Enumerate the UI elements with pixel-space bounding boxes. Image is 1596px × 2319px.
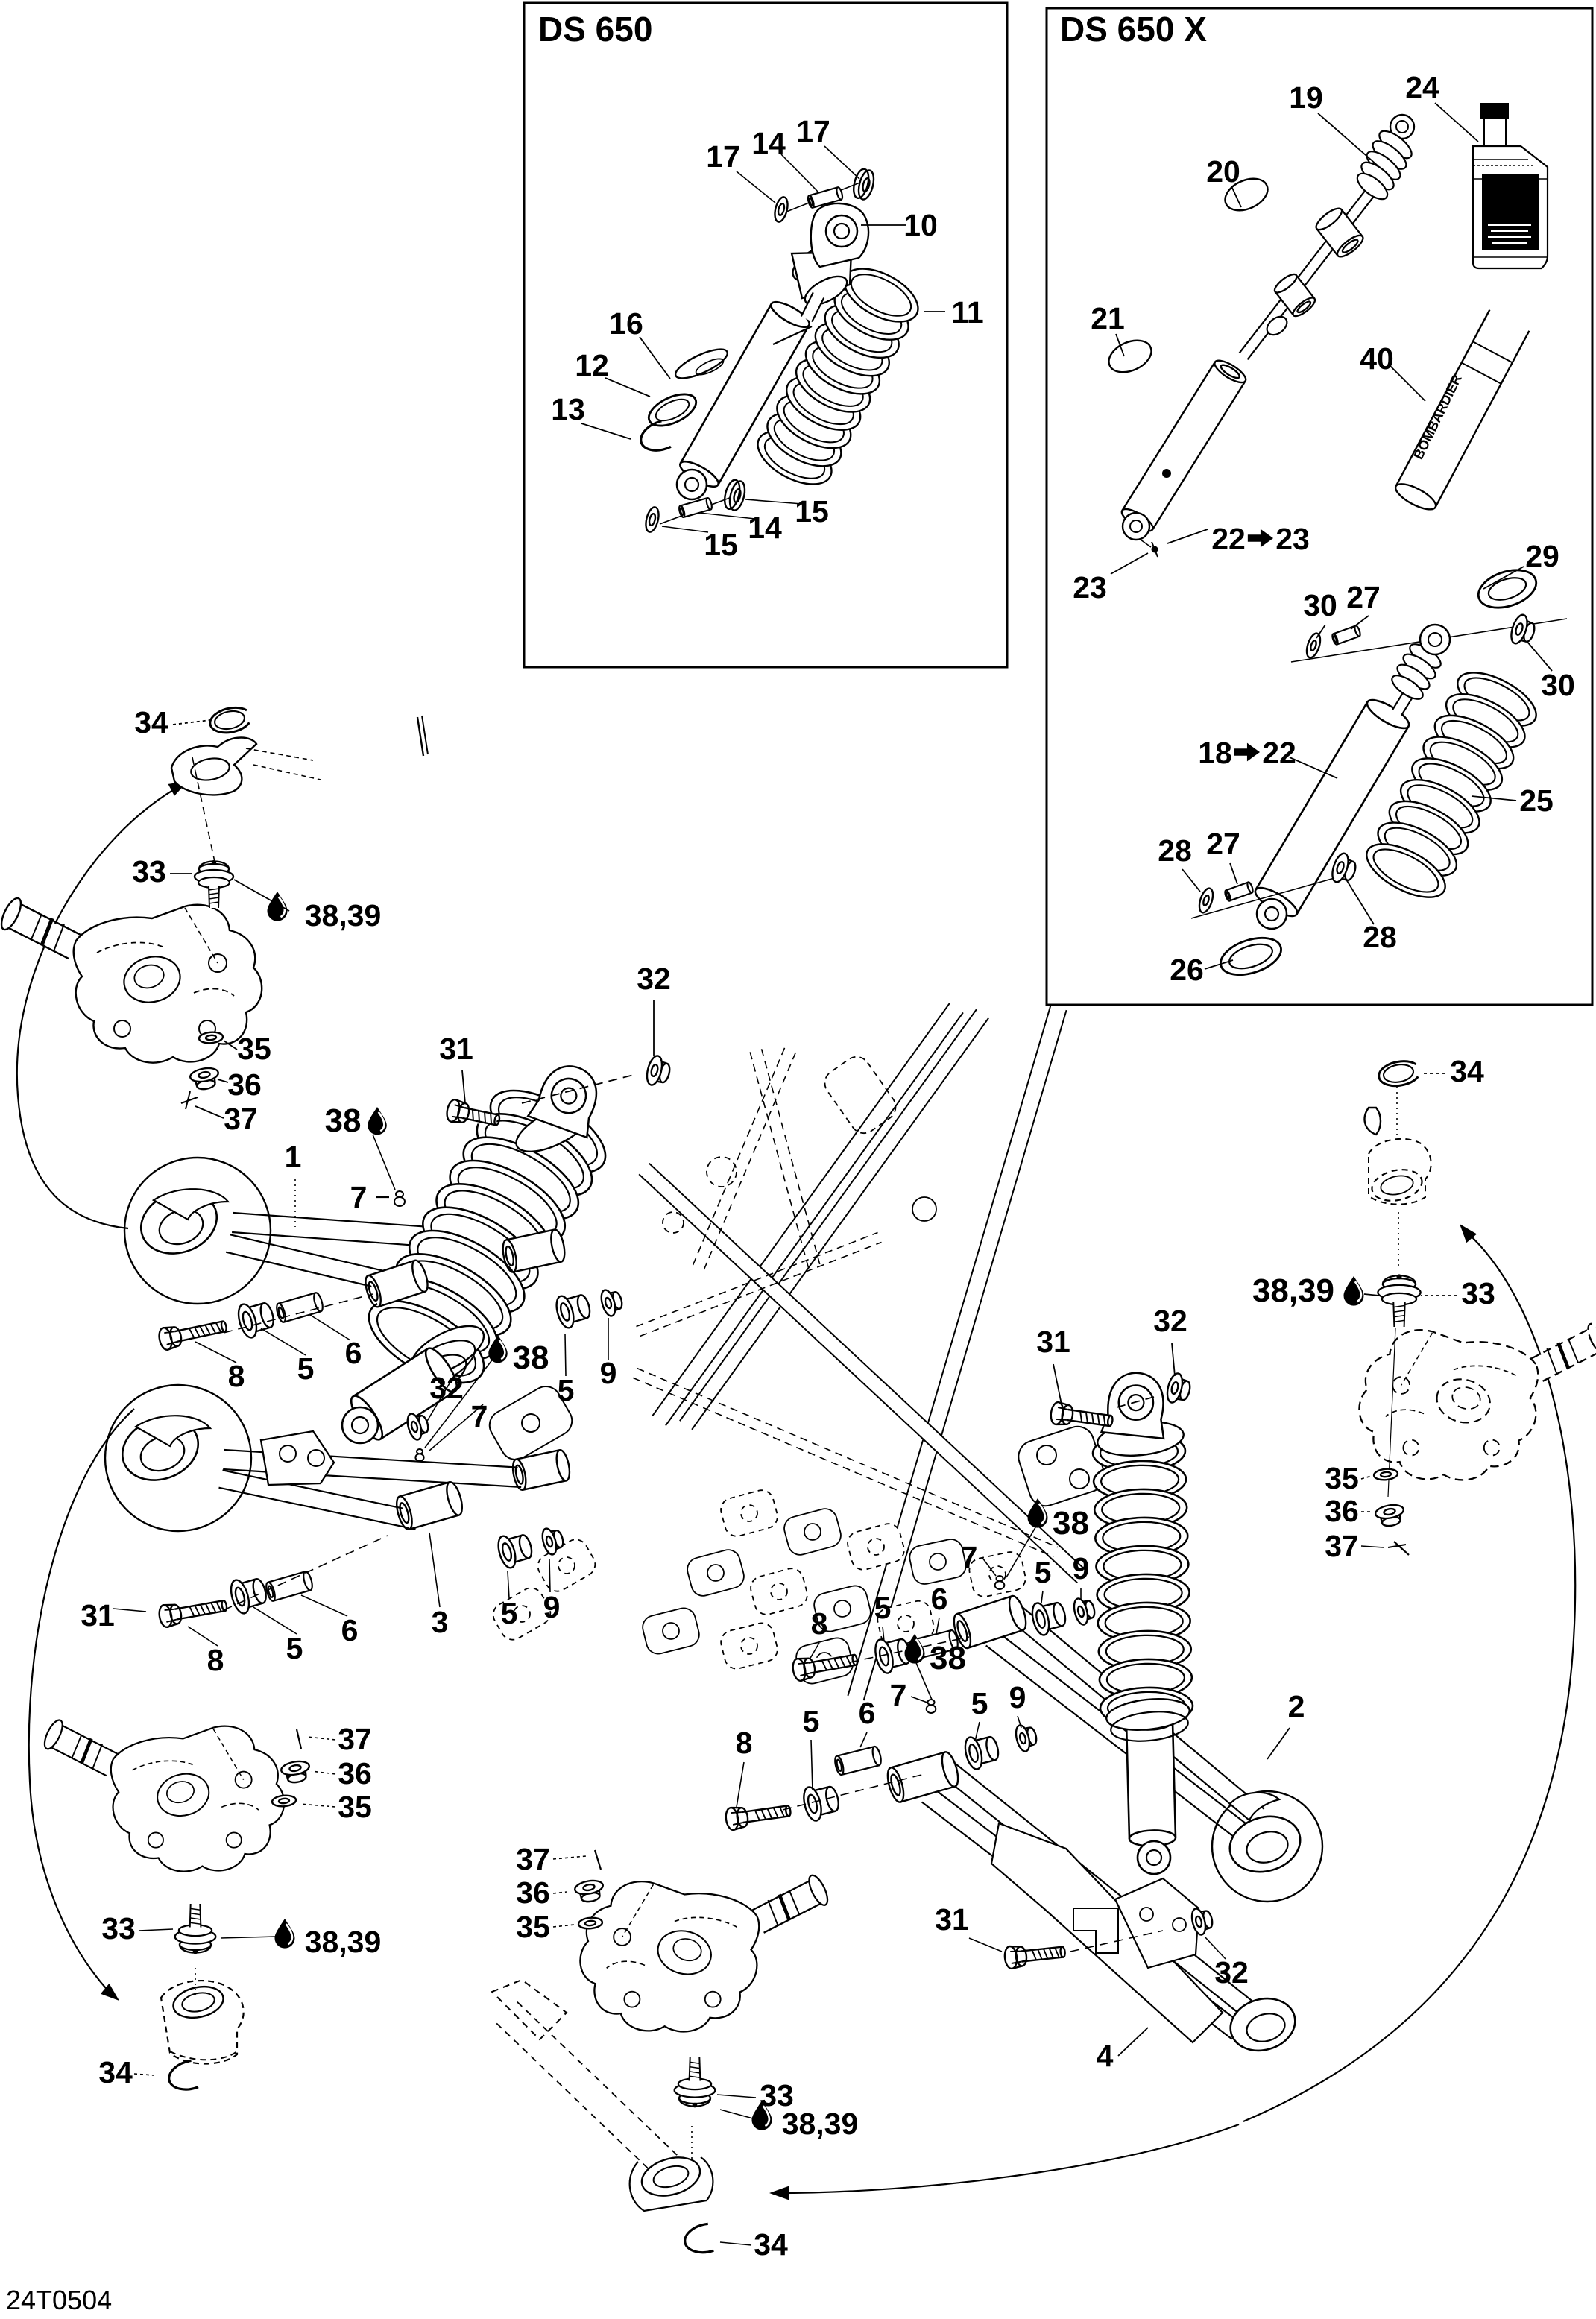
svg-text:38: 38 [1053, 1505, 1089, 1542]
svg-text:37: 37 [516, 1842, 550, 1876]
svg-text:26: 26 [1170, 953, 1204, 987]
svg-text:37: 37 [1325, 1529, 1359, 1563]
svg-text:37: 37 [338, 1722, 372, 1756]
svg-text:24: 24 [1405, 70, 1439, 104]
svg-text:28: 28 [1158, 833, 1192, 868]
svg-text:40: 40 [1360, 341, 1394, 376]
svg-text:7: 7 [961, 1540, 978, 1574]
svg-text:29: 29 [1525, 539, 1559, 573]
svg-text:31: 31 [935, 1902, 969, 1937]
svg-text:38,39: 38,39 [1252, 1272, 1334, 1309]
svg-text:17: 17 [706, 139, 740, 174]
svg-text:21: 21 [1091, 301, 1125, 335]
svg-text:2: 2 [1288, 1689, 1305, 1723]
svg-text:38: 38 [930, 1640, 966, 1676]
svg-text:5: 5 [1035, 1555, 1052, 1589]
svg-text:38: 38 [325, 1102, 362, 1139]
svg-text:5: 5 [803, 1704, 820, 1738]
svg-text:5: 5 [558, 1373, 575, 1407]
svg-text:35: 35 [338, 1790, 372, 1824]
svg-text:9: 9 [1009, 1680, 1026, 1714]
svg-text:5: 5 [501, 1596, 518, 1630]
svg-text:8: 8 [228, 1359, 245, 1393]
svg-text:DS 650: DS 650 [538, 10, 652, 48]
svg-text:32: 32 [1214, 1955, 1249, 1990]
svg-text:34: 34 [98, 2055, 133, 2089]
svg-text:9: 9 [600, 1356, 617, 1390]
svg-text:5: 5 [874, 1591, 892, 1625]
svg-text:32: 32 [1153, 1304, 1187, 1338]
svg-text:6: 6 [859, 1696, 876, 1730]
svg-text:35: 35 [1325, 1461, 1359, 1495]
svg-text:30: 30 [1541, 668, 1575, 702]
svg-text:18: 18 [1198, 736, 1232, 770]
svg-text:19: 19 [1289, 81, 1323, 115]
svg-text:6: 6 [345, 1336, 362, 1370]
svg-text:5: 5 [297, 1351, 315, 1386]
svg-text:38: 38 [513, 1340, 549, 1376]
svg-text:37: 37 [224, 1102, 258, 1136]
svg-text:11: 11 [951, 295, 983, 329]
svg-text:38,39: 38,39 [305, 898, 382, 933]
svg-text:6: 6 [931, 1582, 948, 1616]
svg-text:34: 34 [754, 2227, 788, 2262]
svg-text:14: 14 [748, 511, 782, 545]
svg-text:34: 34 [1450, 1054, 1484, 1088]
svg-text:3: 3 [432, 1605, 449, 1639]
svg-text:31: 31 [1036, 1325, 1070, 1359]
svg-text:8: 8 [811, 1606, 828, 1641]
svg-text:38,39: 38,39 [305, 1925, 382, 1959]
svg-text:15: 15 [704, 528, 738, 562]
svg-text:35: 35 [516, 1910, 550, 1944]
svg-text:13: 13 [551, 392, 585, 426]
svg-text:4: 4 [1097, 2039, 1114, 2073]
svg-text:10: 10 [903, 208, 938, 242]
svg-text:30: 30 [1303, 588, 1337, 622]
svg-text:7: 7 [350, 1180, 368, 1214]
svg-text:DS 650 X: DS 650 X [1060, 10, 1207, 48]
svg-text:38,39: 38,39 [782, 2107, 859, 2141]
svg-text:14: 14 [751, 126, 786, 160]
svg-text:27: 27 [1346, 580, 1381, 614]
svg-text:9: 9 [1073, 1551, 1090, 1586]
svg-text:32: 32 [637, 962, 671, 996]
svg-text:22: 22 [1262, 736, 1296, 770]
svg-text:15: 15 [795, 494, 829, 529]
svg-text:23: 23 [1073, 570, 1107, 605]
svg-text:8: 8 [736, 1726, 753, 1760]
svg-text:36: 36 [227, 1067, 262, 1102]
svg-text:33: 33 [1461, 1276, 1495, 1310]
svg-text:17: 17 [796, 114, 830, 148]
svg-text:27: 27 [1206, 827, 1240, 861]
svg-text:7: 7 [890, 1678, 907, 1712]
svg-text:33: 33 [101, 1911, 136, 1946]
svg-text:34: 34 [134, 705, 168, 739]
svg-text:16: 16 [609, 306, 643, 341]
svg-text:36: 36 [516, 1875, 550, 1910]
svg-text:36: 36 [1325, 1494, 1359, 1528]
svg-text:12: 12 [575, 348, 609, 382]
svg-text:7: 7 [471, 1399, 488, 1433]
svg-text:8: 8 [207, 1643, 224, 1677]
svg-text:31: 31 [439, 1032, 473, 1066]
svg-text:5: 5 [286, 1631, 303, 1665]
svg-text:31: 31 [81, 1598, 115, 1632]
svg-text:6: 6 [341, 1613, 359, 1647]
svg-text:35: 35 [237, 1032, 271, 1066]
svg-text:20: 20 [1206, 154, 1240, 189]
svg-text:1: 1 [285, 1140, 302, 1174]
svg-text:33: 33 [132, 854, 166, 889]
svg-text:23: 23 [1275, 522, 1310, 556]
svg-text:5: 5 [971, 1686, 988, 1720]
svg-text:36: 36 [338, 1756, 372, 1790]
svg-text:22: 22 [1211, 522, 1246, 556]
svg-text:9: 9 [543, 1590, 561, 1624]
svg-text:25: 25 [1519, 783, 1554, 818]
svg-text:24T0504: 24T0504 [6, 2285, 112, 2315]
svg-text:28: 28 [1363, 920, 1397, 954]
